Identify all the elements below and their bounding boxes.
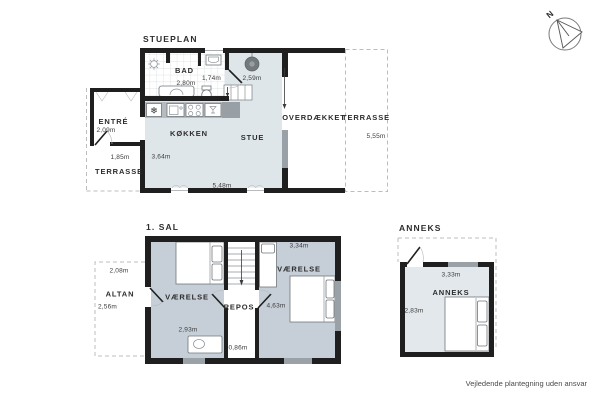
dim-terrasse-depth: 5,55m <box>366 133 385 140</box>
tall-cabinet <box>222 102 240 118</box>
sliding-door-window <box>282 130 288 168</box>
room-label-anneks: ANNEKS <box>432 288 469 297</box>
entre-wall-bottom <box>110 142 140 146</box>
wall-right <box>489 262 494 357</box>
pillow <box>212 264 222 280</box>
wall-bottom <box>400 352 494 357</box>
bed-icon <box>290 276 335 322</box>
entre-wall-left <box>90 88 94 146</box>
pillow <box>212 246 222 262</box>
pillow <box>262 244 275 253</box>
annex-title: ANNEKS <box>399 223 442 233</box>
dim-altan-width: 2,08m <box>109 268 128 275</box>
stairs-icon <box>228 248 255 286</box>
dim-entre: 2,09m <box>96 127 115 134</box>
arrow-head <box>283 104 287 109</box>
bed-icon <box>445 297 489 351</box>
repos-wall-right-lower <box>255 308 259 358</box>
wall-top <box>145 236 341 242</box>
annex-door-icon <box>407 247 420 264</box>
window-bottom-left <box>183 358 205 364</box>
wardrobe-doors-icon <box>96 92 137 101</box>
bad-stub-2 <box>198 53 201 66</box>
compass-north-label: N <box>544 9 555 21</box>
room-label-terrasse-right: TERRASSE <box>342 113 390 122</box>
pillow <box>326 300 334 318</box>
room-label-vaerelse-left: VÆRELSE <box>165 293 209 302</box>
dim-stove: 2,59m <box>242 75 261 82</box>
first-floor-title: 1. SAL <box>146 222 179 232</box>
dim-bad-depth: 1,74m <box>202 75 221 82</box>
compass-icon: N <box>544 9 582 50</box>
dim-vaerelse-right-depth: 4,63m <box>266 303 285 310</box>
dim-bad-width: 2,80m <box>176 80 195 87</box>
room-label-repos: REPOS <box>224 303 255 312</box>
room-label-terrasse-left: TERRASSE <box>95 167 143 176</box>
dim-altan-depth: 2,56m <box>98 304 117 311</box>
stue-wall-right-top <box>282 48 288 77</box>
bad-stub-1 <box>166 53 170 63</box>
wall-left-lower <box>145 307 151 364</box>
window-top <box>448 262 478 267</box>
bed-icon <box>260 242 277 287</box>
snowflake-fridge-icon: ❄ <box>150 106 158 116</box>
wall-left-upper <box>140 48 145 117</box>
wall-left-upper <box>145 236 151 287</box>
bed-icon <box>176 242 224 284</box>
bad-wall-right <box>225 53 229 70</box>
room-label-altan: ALTAN <box>106 290 135 299</box>
disclaimer-text: Vejledende plantegning uden ansvar <box>466 379 588 388</box>
floor-plan-canvas: STUEPLAN ❄ <box>0 0 600 400</box>
desk <box>188 336 222 353</box>
door-swing <box>420 247 423 262</box>
bad-wall-bottom <box>145 96 229 101</box>
room-label-overdaekket: OVERDÆKKET <box>282 113 346 122</box>
pillow <box>478 301 488 322</box>
room-label-vaerelse-right: VÆRELSE <box>277 265 321 274</box>
dim-annex-depth: 2,83m <box>404 308 423 315</box>
ground-floor-plan: STUEPLAN ❄ <box>87 34 391 194</box>
first-floor-plan: 1. SAL <box>95 222 341 364</box>
dim-vaerelse-right-width: 3,34m <box>289 243 308 250</box>
down-arrow-icon <box>240 280 244 286</box>
dim-kokken-depth: 3,64m <box>151 154 170 161</box>
dim-repos: 0,86m <box>228 345 247 352</box>
entre-wall-top <box>90 88 140 92</box>
annex-plan: ANNEKS 3,33m ANNEKS 2,83m <box>398 223 496 357</box>
room-label-entre: ENTRÉ <box>99 117 129 126</box>
pillow <box>478 325 488 346</box>
ground-floor-title: STUEPLAN <box>143 34 198 44</box>
wall-top <box>140 48 345 53</box>
dim-entre-door: 1,85m <box>110 154 129 161</box>
kitchen-counter: ❄ <box>145 102 240 118</box>
wall-bottom <box>140 188 345 193</box>
repos-wall-left-lower <box>224 308 228 358</box>
stue-wall-right-bottom <box>282 168 288 193</box>
stove-cap <box>249 61 254 66</box>
vanity-icon <box>159 86 194 97</box>
window-bottom-right <box>284 358 312 364</box>
room-label-kokken: KØKKEN <box>170 129 208 138</box>
room-label-bad: BAD <box>175 66 194 75</box>
repos-wall-left-upper <box>224 242 228 290</box>
room-label-stue: STUE <box>241 133 265 142</box>
repos-wall-right-upper <box>255 242 259 290</box>
dim-annex-width: 3,33m <box>441 272 460 279</box>
dim-stue-width: 5,48m <box>212 183 231 190</box>
desk-icon <box>188 336 222 353</box>
dim-vaerelse-left: 2,93m <box>178 327 197 334</box>
pillow <box>326 280 334 298</box>
window-right <box>335 281 341 331</box>
